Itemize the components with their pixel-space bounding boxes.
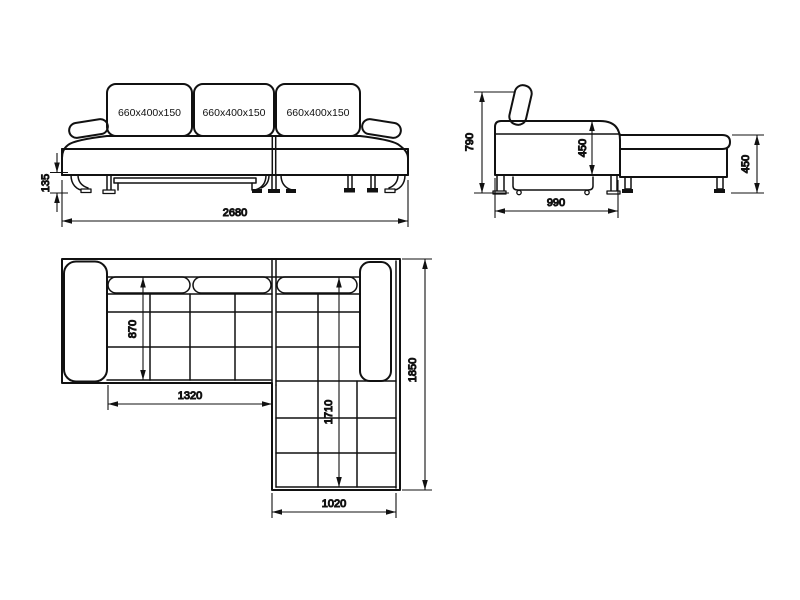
cushion-size-label: 660x400x150 bbox=[118, 107, 181, 119]
cushion-size-label: 660x400x150 bbox=[202, 107, 265, 119]
plan-right-armrest bbox=[360, 262, 391, 381]
dim-chaise-height: 450 bbox=[731, 135, 764, 193]
bed-frame-bar bbox=[114, 178, 256, 183]
dim-label-chaise-length: 1710 bbox=[323, 400, 335, 424]
plan-section-junction bbox=[272, 259, 276, 385]
sofa-dimension-drawing: 660x400x150 660x400x150 660x400x150 bbox=[0, 0, 800, 600]
dim-label-overall-width: 2680 bbox=[223, 207, 247, 219]
plan-back-cushion bbox=[193, 277, 271, 293]
plan-back-cushion bbox=[277, 277, 357, 293]
front-view: 660x400x150 660x400x150 660x400x150 bbox=[40, 84, 408, 227]
side-view: 790 450 990 450 bbox=[464, 84, 764, 218]
dim-label-seat-height: 450 bbox=[577, 139, 589, 157]
dim-leg-height: 135 bbox=[40, 153, 68, 212]
chaise-side-cushion bbox=[620, 135, 730, 149]
dim-overall-width: 2680 bbox=[62, 180, 408, 227]
front-legs bbox=[71, 175, 405, 194]
dim-label-overall-depth: 1850 bbox=[407, 358, 419, 382]
cushion-size-label: 660x400x150 bbox=[286, 107, 349, 119]
storage-box bbox=[513, 177, 593, 190]
dim-label-overall-height: 790 bbox=[464, 133, 476, 151]
dim-chaise-length: 1710 bbox=[323, 278, 339, 488]
dim-label-chaise-height: 450 bbox=[740, 155, 752, 173]
dim-label-seat-depth: 990 bbox=[547, 197, 565, 209]
dim-overall-height: 790 bbox=[464, 92, 514, 193]
dim-label-seat-depth-plan: 870 bbox=[127, 320, 139, 338]
plan-seat-grid bbox=[108, 294, 396, 487]
back-cushion-row: 660x400x150 660x400x150 660x400x150 bbox=[107, 84, 360, 136]
dim-label-leg-height: 135 bbox=[40, 174, 52, 192]
plan-left-armrest bbox=[64, 262, 107, 382]
section-divider bbox=[272, 136, 275, 175]
dim-left-section-width: 1320 bbox=[108, 385, 272, 410]
right-armrest-cushion bbox=[361, 118, 402, 139]
dim-chaise-width: 1020 bbox=[272, 493, 396, 518]
dim-label-left-section-width: 1320 bbox=[178, 390, 202, 402]
sofa-side-body bbox=[495, 121, 620, 175]
sofa-front-body bbox=[62, 136, 408, 175]
plan-back-cushion bbox=[108, 277, 190, 293]
chaise-side-body bbox=[620, 149, 727, 177]
dim-label-chaise-width: 1020 bbox=[322, 498, 346, 510]
backrest-pillow bbox=[508, 84, 534, 127]
dim-seat-height: 450 bbox=[577, 121, 592, 175]
plan-view: 870 1320 1710 1850 1020 bbox=[62, 259, 432, 518]
dim-overall-depth: 1850 bbox=[402, 259, 432, 490]
plan-back-cushions bbox=[108, 277, 357, 293]
